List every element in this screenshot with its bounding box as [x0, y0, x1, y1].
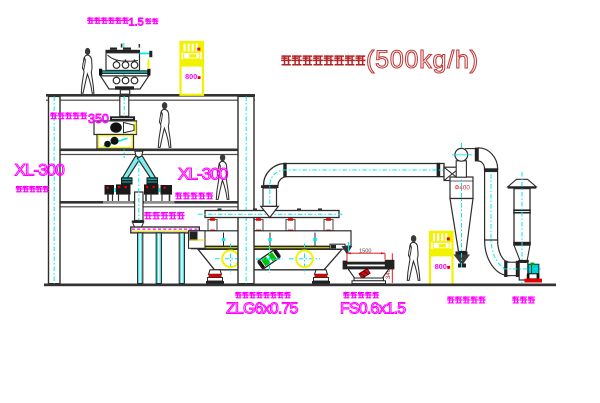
- svg-text:1.5: 1.5: [129, 17, 144, 29]
- svg-text:800: 800: [435, 262, 447, 271]
- svg-text:Φ400: Φ400: [455, 185, 471, 192]
- svg-text:350: 350: [88, 112, 109, 126]
- svg-text:800: 800: [185, 72, 197, 81]
- svg-text:(500kg/h): (500kg/h): [366, 46, 479, 74]
- svg-text:XL-300: XL-300: [15, 161, 65, 180]
- svg-text:FS0.6x1.5: FS0.6x1.5: [340, 301, 406, 318]
- svg-text:XL-300: XL-300: [178, 165, 228, 184]
- svg-text:1500: 1500: [359, 248, 371, 254]
- svg-text:ZLG6x0.75: ZLG6x0.75: [226, 301, 298, 318]
